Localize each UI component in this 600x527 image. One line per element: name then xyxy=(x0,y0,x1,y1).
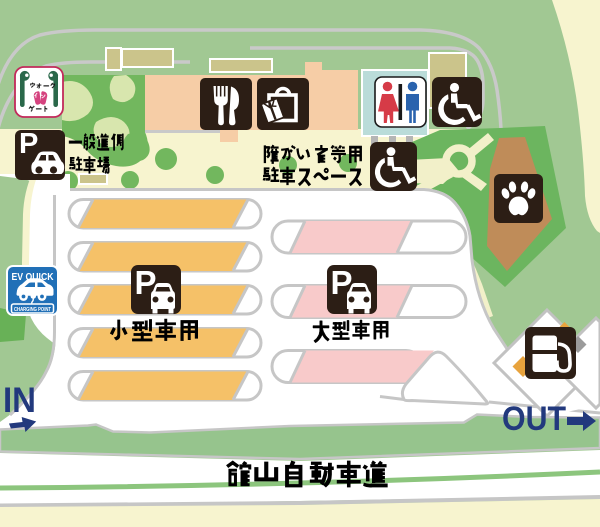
svg-text:P: P xyxy=(19,128,38,160)
svg-text:IN: IN xyxy=(3,381,36,420)
svg-text:CHARGING POINT: CHARGING POINT xyxy=(14,307,51,313)
svg-text:OUT: OUT xyxy=(502,400,566,438)
